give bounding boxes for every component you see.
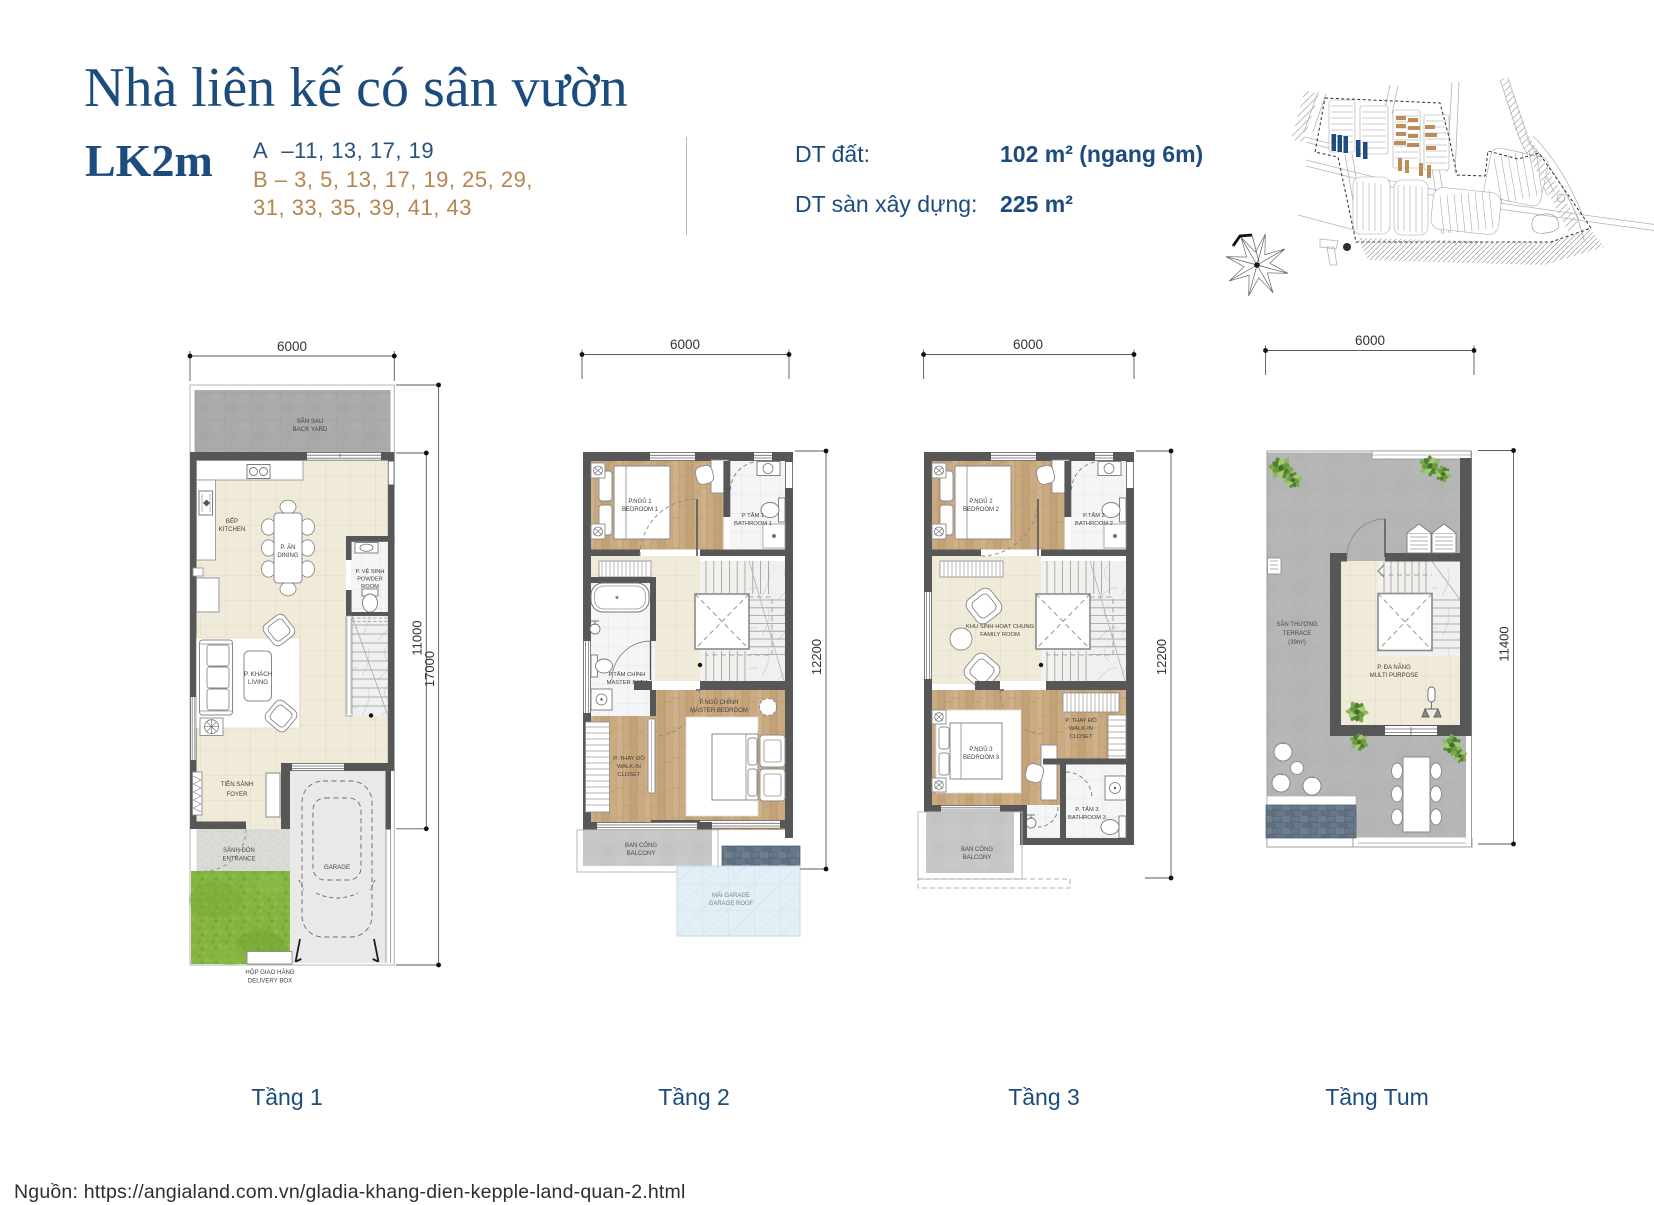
svg-text:BALCONY: BALCONY <box>627 851 656 857</box>
svg-text:BẾP: BẾP <box>226 518 238 525</box>
svg-text:HỘP GIAO HÀNG: HỘP GIAO HÀNG <box>245 969 295 976</box>
svg-text:6000: 6000 <box>670 337 700 352</box>
svg-text:P. ĂN: P. ĂN <box>280 544 295 551</box>
svg-text:6000: 6000 <box>1013 337 1043 352</box>
svg-text:GARAGE: GARAGE <box>324 864 350 871</box>
svg-text:P.NGỦ 1: P.NGỦ 1 <box>628 498 652 505</box>
svg-text:TERRACE: TERRACE <box>1283 631 1312 637</box>
svg-text:11000: 11000 <box>410 620 425 655</box>
svg-text:P. ĐA NĂNG: P. ĐA NĂNG <box>1377 664 1411 671</box>
svg-text:BATHROOM 2: BATHROOM 2 <box>1075 521 1113 527</box>
svg-text:WALK-IN: WALK-IN <box>1069 726 1093 732</box>
svg-text:WALK-IN: WALK-IN <box>617 764 641 770</box>
svg-text:P. VỆ SINH: P. VỆ SINH <box>356 567 385 575</box>
svg-text:P TẮM 1: P TẮM 1 <box>742 511 764 519</box>
svg-text:6000: 6000 <box>277 339 307 354</box>
svg-text:POWDER: POWDER <box>357 577 383 583</box>
svg-text:12200: 12200 <box>1154 639 1169 675</box>
svg-text:MASTER BEDROOM: MASTER BEDROOM <box>690 708 748 714</box>
svg-text:ENTRANCE: ENTRANCE <box>222 857 255 863</box>
svg-text:BAN CÔNG: BAN CÔNG <box>961 846 993 853</box>
svg-text:BATHROOM 1: BATHROOM 1 <box>734 521 772 527</box>
svg-text:BEDROOM 1: BEDROOM 1 <box>622 507 659 513</box>
svg-text:P.TẮM CHÍNH: P.TẮM CHÍNH <box>609 670 646 678</box>
svg-text:FAMILY ROOM: FAMILY ROOM <box>980 632 1020 638</box>
svg-text:CLOSET: CLOSET <box>1069 734 1093 740</box>
svg-text:SÂN THƯỢNG: SÂN THƯỢNG <box>1276 621 1317 628</box>
svg-text:12200: 12200 <box>809 639 824 675</box>
svg-text:TIỀN SẢNH: TIỀN SẢNH <box>221 781 254 788</box>
svg-text:DELIVERY BOX: DELIVERY BOX <box>248 978 292 985</box>
svg-text:SÂN SAU: SÂN SAU <box>297 418 324 425</box>
svg-text:KHU SINH HOẠT CHUNG: KHU SINH HOẠT CHUNG <box>966 624 1035 630</box>
svg-text:KITCHEN: KITCHEN <box>219 526 246 533</box>
svg-text:BEDROOM 2: BEDROOM 2 <box>963 507 1000 513</box>
svg-text:6000: 6000 <box>1355 333 1385 348</box>
svg-text:BATHROOM 3: BATHROOM 3 <box>1068 815 1106 821</box>
svg-text:P.NGỦ 2: P.NGỦ 2 <box>969 498 993 505</box>
svg-text:MÁI GARAGE: MÁI GARAGE <box>712 892 750 899</box>
svg-text:LIVING: LIVING <box>248 679 268 686</box>
svg-text:FOYER: FOYER <box>227 791 249 798</box>
svg-text:P. THAY ĐỒ: P. THAY ĐỒ <box>1065 717 1097 724</box>
svg-text:BAN CÔNG: BAN CÔNG <box>625 842 657 849</box>
svg-text:CLOSET: CLOSET <box>617 772 641 778</box>
svg-text:P. KHÁCH: P. KHÁCH <box>244 671 272 678</box>
svg-text:SẢNH ĐÓN: SẢNH ĐÓN <box>223 847 255 854</box>
svg-text:(39m²): (39m²) <box>1288 640 1306 646</box>
svg-text:P.TẮM 2: P.TẮM 2 <box>1083 511 1105 519</box>
svg-text:BEDROOM 3: BEDROOM 3 <box>963 755 1000 761</box>
svg-text:GARAGE ROOF: GARAGE ROOF <box>709 901 754 907</box>
svg-text:17000: 17000 <box>422 651 437 687</box>
svg-text:P. THAY ĐỒ: P. THAY ĐỒ <box>613 755 645 762</box>
svg-text:ROOM: ROOM <box>361 584 379 590</box>
svg-text:P. TẮM 3: P. TẮM 3 <box>1075 805 1098 813</box>
svg-text:P.NGỦ 3: P.NGỦ 3 <box>969 746 993 753</box>
svg-text:DINING: DINING <box>277 552 299 559</box>
svg-text:BACK YARD: BACK YARD <box>293 426 328 433</box>
svg-text:BALCONY: BALCONY <box>963 855 992 861</box>
svg-text:MULTI PURPOSE: MULTI PURPOSE <box>1370 673 1419 679</box>
svg-text:11400: 11400 <box>1497 626 1512 661</box>
svg-text:P.NGỦ CHÍNH: P.NGỦ CHÍNH <box>700 699 739 706</box>
